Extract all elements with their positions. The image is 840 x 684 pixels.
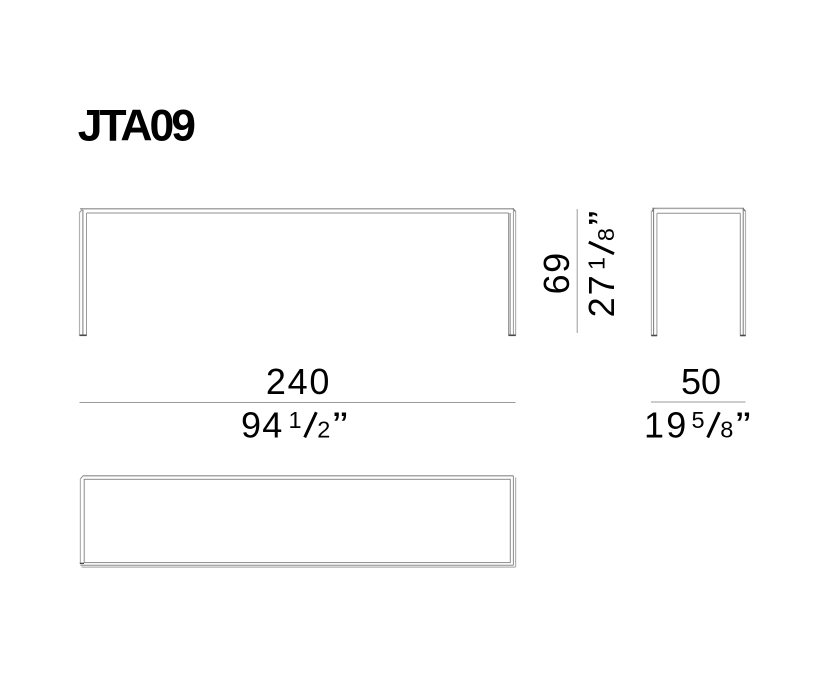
svg-text:1: 1: [288, 407, 301, 433]
svg-text:240: 240: [266, 361, 331, 402]
svg-text:69: 69: [536, 251, 577, 294]
svg-text:19: 19: [644, 405, 688, 446]
svg-text:8: 8: [720, 417, 733, 443]
svg-text:8: 8: [593, 228, 619, 241]
svg-text:”: ”: [736, 405, 751, 446]
svg-text:94: 94: [241, 405, 283, 446]
svg-text:50: 50: [681, 361, 721, 402]
svg-text:2: 2: [317, 417, 330, 443]
svg-text:”: ”: [581, 211, 622, 226]
svg-text:5: 5: [691, 407, 704, 433]
svg-text:”: ”: [333, 405, 348, 446]
svg-text:27: 27: [581, 273, 622, 317]
svg-text:1: 1: [584, 257, 610, 270]
svg-text:JTA09: JTA09: [78, 102, 196, 151]
